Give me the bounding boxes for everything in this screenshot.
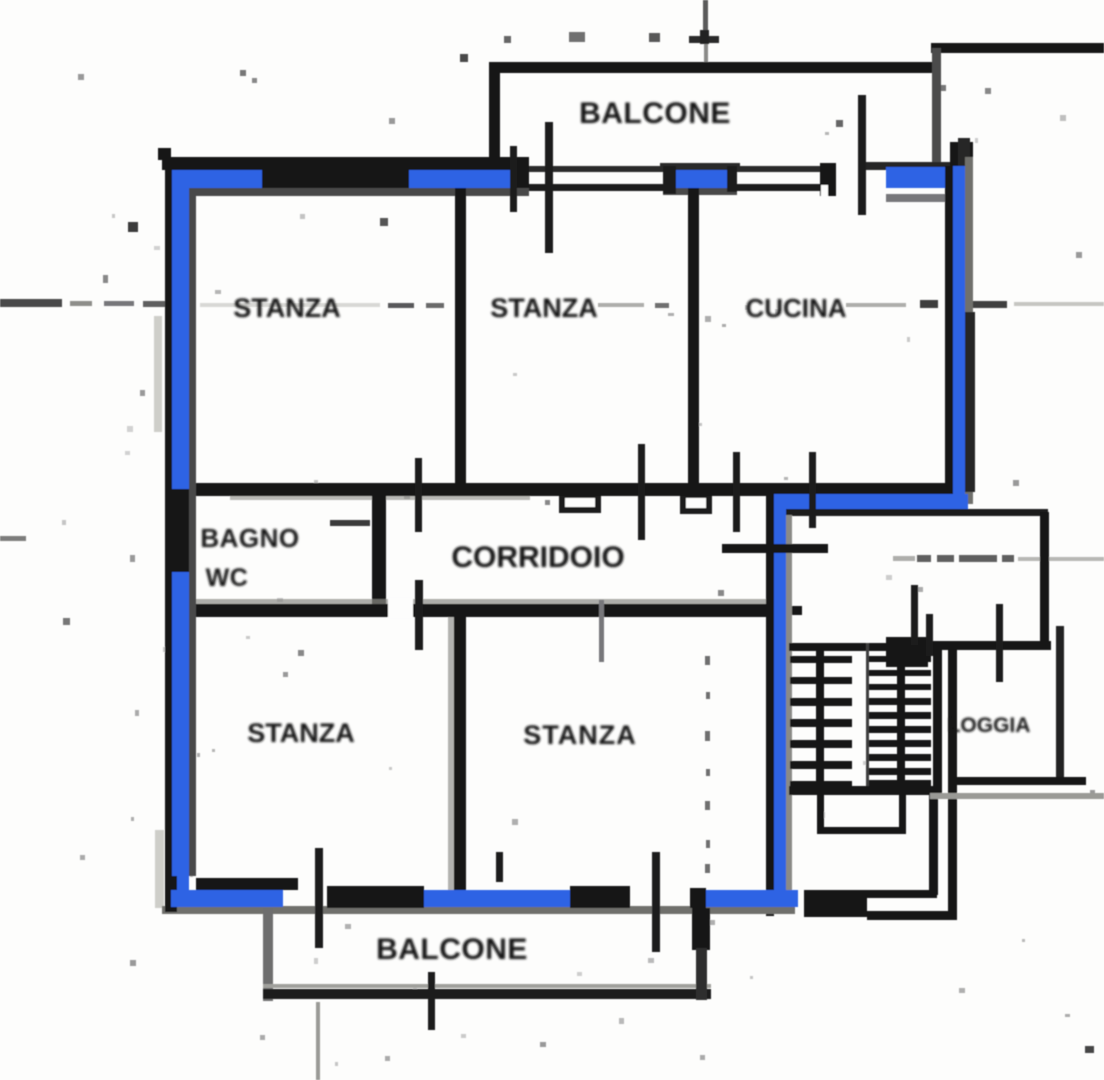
svg-text:STANZA: STANZA <box>523 720 637 750</box>
svg-text:LOGGIA: LOGGIA <box>948 714 1031 737</box>
svg-text:BALCONE: BALCONE <box>376 933 528 966</box>
svg-text:CORRIDOIO: CORRIDOIO <box>451 541 624 574</box>
svg-text:STANZA: STANZA <box>490 293 598 323</box>
svg-text:STANZA: STANZA <box>247 718 355 748</box>
svg-text:WC: WC <box>206 564 249 592</box>
svg-text:BALCONE: BALCONE <box>579 97 731 130</box>
svg-text:BAGNO: BAGNO <box>200 523 299 553</box>
svg-text:STANZA: STANZA <box>233 293 341 323</box>
svg-text:CUCINA: CUCINA <box>745 293 846 323</box>
